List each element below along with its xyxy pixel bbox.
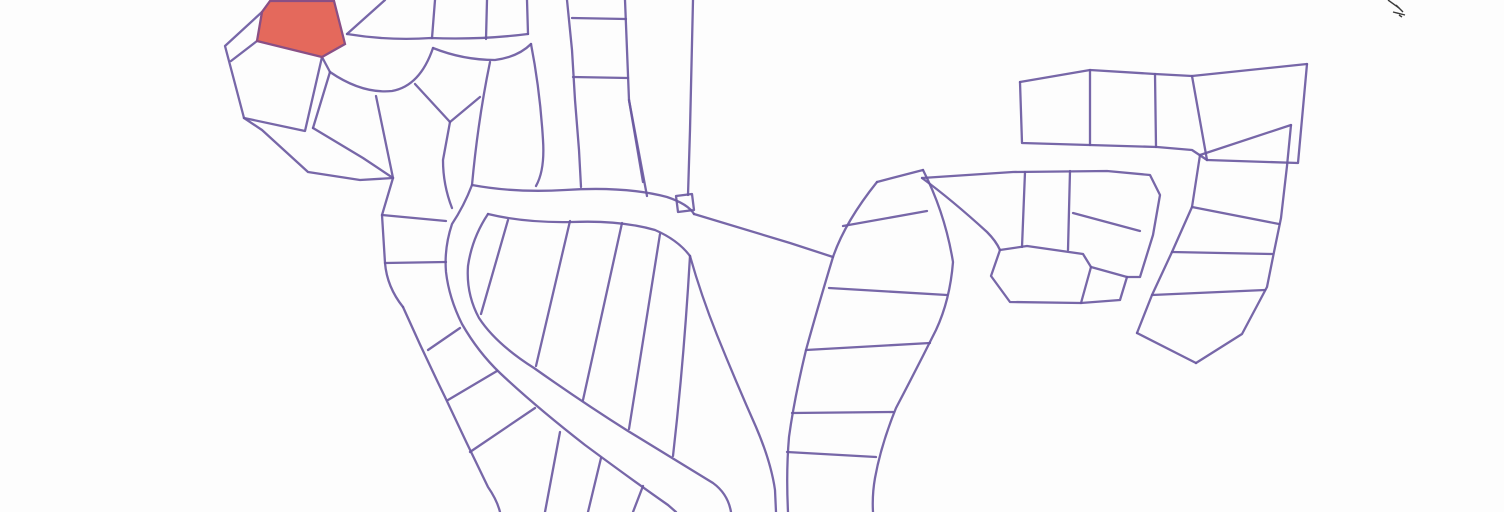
lot-line-road1-lower-edge <box>433 44 531 60</box>
lot-line-cluster-mid-right-divider-1 <box>1022 172 1025 247</box>
lot-line-hairpin-band-top-edge <box>472 185 694 214</box>
lot-line-fork-road-north-edge <box>694 214 833 257</box>
lot-line-outside-divider-2 <box>385 262 446 263</box>
corner-annotation-stroke <box>1399 15 1402 17</box>
lot-line-island-divider-4 <box>629 234 660 429</box>
plat-map-viewport <box>0 0 1504 512</box>
lot-line-fan-chain-south <box>382 178 403 307</box>
lot-line-sband-rung-5 <box>787 452 876 457</box>
lot-line-ladder-rung-2 <box>573 77 628 78</box>
lot-line-island-east-divider <box>673 256 690 456</box>
lot-line-pocket-stub <box>322 57 330 72</box>
lot-line-strip-far-right-left-chain <box>1137 155 1200 333</box>
lot-line-hexagon-appendage-1 <box>1091 267 1127 277</box>
lot-line-strip-far-right-top <box>1200 125 1291 155</box>
lot-line-bottom-divider-3 <box>633 486 643 512</box>
lot-line-fan-divider <box>376 96 393 178</box>
lot-line-bottom-divider-1 <box>545 432 560 512</box>
lot-line-strip-far-right-bottom <box>1137 333 1196 363</box>
lot-line-cluster-mid-right-divider-3 <box>1073 213 1140 231</box>
highlighted-parcel[interactable] <box>257 1 345 57</box>
lot-line-cluster-mid-right-outline <box>922 171 1160 277</box>
lot-lines-layer <box>225 0 1307 512</box>
lot-line-corridor-edge <box>922 178 1000 250</box>
lot-line-cluster-ne-left-bottom <box>1020 82 1207 160</box>
lot-line-cluster-mid-right-divider-2 <box>1068 171 1070 250</box>
lot-line-cluster-ne-divider-3 <box>1192 76 1207 160</box>
lot-line-sband-rung-3 <box>806 343 930 350</box>
lot-line-ladder-rung-1 <box>572 18 626 19</box>
lot-line-road1-upper-edge <box>347 34 528 39</box>
lot-line-sband-rung-2 <box>829 288 947 295</box>
lot-line-sband-rung-4 <box>792 412 893 413</box>
lot-line-strip-rung-2 <box>1172 252 1272 254</box>
lot-line-ladder-bottom-divider <box>629 100 647 196</box>
lot-line-sband-right-chain <box>873 170 953 512</box>
lot-line-cluster-nw-boundary-se <box>244 118 393 180</box>
lot-line-southwest-boundary <box>403 307 500 512</box>
lot-line-sband-top-edge <box>877 170 923 182</box>
lot-line-outside-divider-3 <box>428 328 460 350</box>
lot-line-cluster-ne-top-edge <box>1020 64 1307 82</box>
lot-line-top-lot-divider-3 <box>486 0 487 39</box>
lot-line-strip-rung-3 <box>1152 290 1265 295</box>
lot-line-road2-west-edge-top <box>527 0 528 34</box>
lot-line-road2-right-edge <box>567 0 581 187</box>
lot-line-column-right-edge <box>688 0 693 195</box>
corner-annotation-mark <box>1388 0 1405 17</box>
lot-line-island-divider-1 <box>481 220 508 314</box>
lot-line-outside-divider-4 <box>448 371 497 400</box>
plat-map <box>0 0 1504 512</box>
lot-line-strip-rung-1 <box>1192 207 1279 224</box>
lot-line-cluster-ne-divider-2 <box>1155 74 1156 147</box>
lot-line-pocket-divider-east <box>415 84 450 122</box>
lot-line-cluster-nw-lot-edges <box>244 57 322 131</box>
corner-annotation-stroke <box>1396 5 1403 12</box>
lot-line-outside-divider-5 <box>470 408 535 452</box>
lot-line-outside-divider-1 <box>382 215 446 221</box>
lot-line-island-divider-3 <box>583 223 622 400</box>
lot-line-cluster-nw-divider-1 <box>231 41 257 61</box>
lot-line-column-divider <box>450 97 480 122</box>
lot-line-pocket-curve <box>330 48 433 91</box>
lot-line-bottom-divider-2 <box>588 458 601 512</box>
lot-line-cluster-nw-outer-west <box>225 12 262 118</box>
lot-line-west-chain <box>443 122 452 208</box>
lot-line-island-east-chain <box>690 256 776 512</box>
lot-line-pentagon-bottom <box>313 128 393 178</box>
lot-line-top-lot-divider-1 <box>347 0 385 34</box>
lot-line-island-divider-2 <box>536 221 570 366</box>
lot-line-top-lot-divider-2 <box>432 0 435 38</box>
lot-line-hexagon-lot <box>991 246 1091 303</box>
lot-line-road2-left-edge <box>531 44 543 186</box>
corner-annotation-stroke <box>1393 12 1405 15</box>
